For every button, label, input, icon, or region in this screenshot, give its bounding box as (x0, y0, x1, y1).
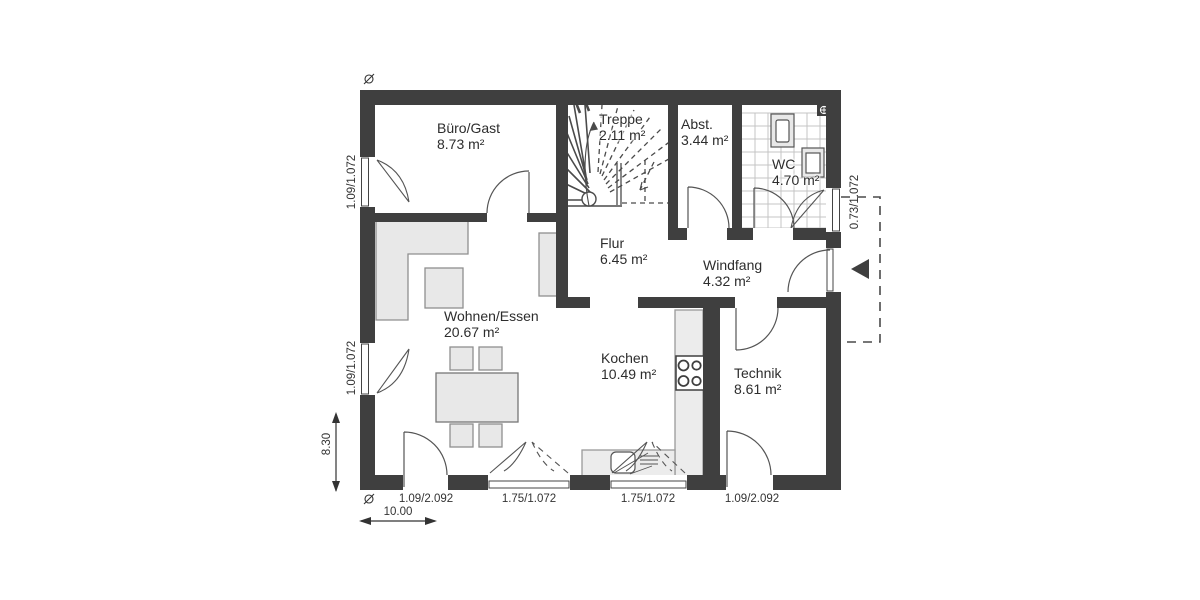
dim-door-south-east: 1.09/2.092 (702, 493, 802, 505)
furniture (376, 221, 703, 477)
room-area: 8.61 m² (734, 382, 781, 398)
door-south-east (726, 431, 773, 490)
coffee-table (425, 268, 463, 308)
room-area: 20.67 m² (444, 325, 539, 341)
floorplan-drawing (0, 0, 1200, 600)
dim-window-left-upper: 1.09/1.072 (346, 132, 358, 232)
room-label-treppe: Treppe 2.11 m² (599, 112, 645, 143)
room-area: 4.70 m² (772, 173, 819, 189)
dining-set (436, 347, 518, 447)
room-name: Kochen (601, 351, 656, 367)
room-label-flur: Flur 6.45 m² (600, 236, 647, 267)
sideboard (539, 233, 557, 296)
room-label-kochen: Kochen 10.49 m² (601, 351, 656, 382)
room-name: Windfang (703, 258, 762, 274)
dim-window-left-lower: 1.09/1.072 (346, 318, 358, 418)
door-buero (487, 171, 529, 222)
stairs (566, 93, 676, 206)
room-name: Büro/Gast (437, 121, 500, 137)
room-area: 3.44 m² (681, 133, 728, 149)
room-label-wohnen: Wohnen/Essen 20.67 m² (444, 309, 539, 340)
dimension-line-width (359, 517, 437, 525)
room-area: 6.45 m² (600, 252, 647, 268)
dim-building-depth: 8.30 (321, 394, 333, 494)
room-area: 4.32 m² (703, 274, 762, 290)
room-label-abstell: Abst. 3.44 m² (681, 117, 728, 148)
room-name: Flur (600, 236, 647, 252)
door-technik (735, 297, 778, 350)
room-label-technik: Technik 8.61 m² (734, 366, 781, 397)
stove (676, 356, 704, 390)
dim-window-wc: 0.73/1.072 (849, 152, 861, 252)
entrance-arrow-icon (851, 259, 869, 279)
toilet (771, 114, 794, 147)
door-south-west (403, 432, 448, 490)
window-south-1 (488, 442, 570, 490)
window-left-upper (360, 157, 409, 207)
room-name: Technik (734, 366, 781, 382)
room-label-buero: Büro/Gast 8.73 m² (437, 121, 500, 152)
room-name: Wohnen/Essen (444, 309, 539, 325)
room-area: 2.11 m² (599, 128, 645, 144)
survey-marker-bottom (364, 494, 374, 504)
dim-door-south-west: 1.09/2.092 (376, 493, 476, 505)
door-abst (687, 187, 729, 240)
room-name: WC (772, 157, 819, 173)
window-left-lower (360, 343, 409, 395)
dim-window-south-2: 1.75/1.072 (598, 493, 698, 505)
room-area: 8.73 m² (437, 137, 500, 153)
room-label-wc: WC 4.70 m² (772, 157, 819, 188)
room-area: 10.49 m² (601, 367, 656, 383)
kitchen-counter-wall (675, 310, 703, 477)
room-label-windfang: Windfang 4.32 m² (703, 258, 762, 289)
survey-marker-top (364, 74, 374, 84)
room-name: Treppe (599, 112, 645, 128)
dimension-line-height (332, 412, 340, 492)
dim-building-width: 10.00 (348, 506, 448, 518)
door-entrance (788, 248, 841, 292)
dim-window-south-1: 1.75/1.072 (479, 493, 579, 505)
room-name: Abst. (681, 117, 728, 133)
floorplan-page: Büro/Gast 8.73 m² Treppe 2.11 m² Abst. 3… (0, 0, 1200, 600)
